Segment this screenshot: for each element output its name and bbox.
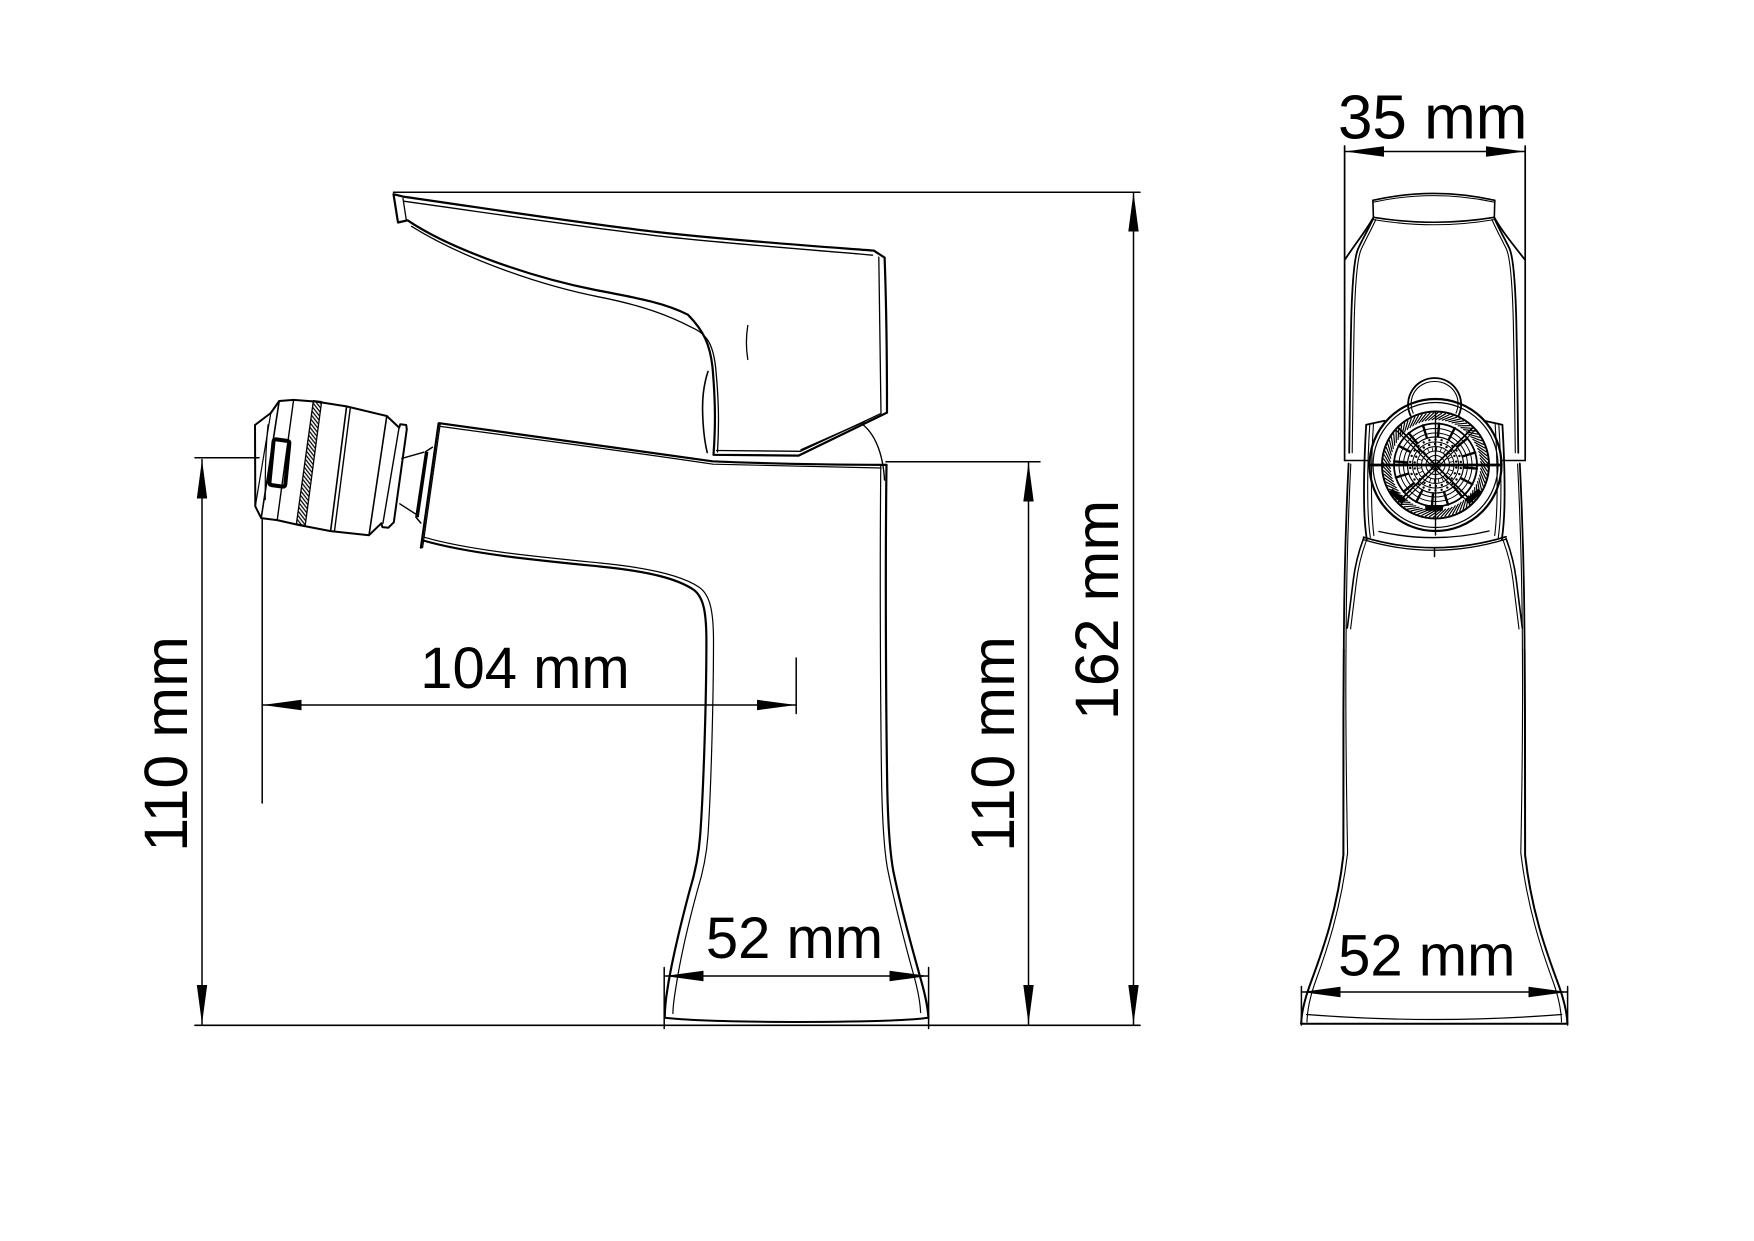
svg-text:35 mm: 35 mm xyxy=(1338,84,1527,153)
svg-text:162 mm: 162 mm xyxy=(1063,500,1131,720)
svg-text:110 mm: 110 mm xyxy=(132,636,200,852)
svg-text:52 mm: 52 mm xyxy=(706,906,883,971)
svg-text:110 mm: 110 mm xyxy=(959,636,1027,852)
svg-text:104 mm: 104 mm xyxy=(420,636,630,701)
svg-text:52 mm: 52 mm xyxy=(1338,924,1515,989)
